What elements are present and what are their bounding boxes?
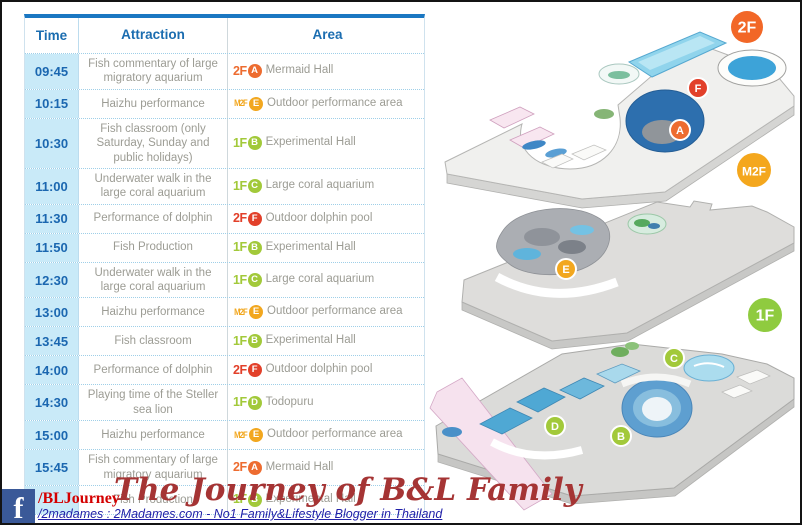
cell-time: 11:00 [25, 169, 79, 204]
floor-label: 2F [233, 363, 247, 378]
table-row: 10:15Haizhu performanceM2FEOutdoor perfo… [25, 90, 424, 119]
table-row: 09:45Fish commentary of large migratory … [25, 54, 424, 90]
floor-map-m2f [462, 201, 794, 349]
floor-badge-label: 1F [756, 308, 775, 325]
cell-time: 13:45 [25, 327, 79, 355]
cell-time: 14:00 [25, 356, 79, 384]
area-name: Outdoor dolphin pool [266, 212, 373, 226]
cell-time: 15:00 [25, 421, 79, 449]
cell-attraction: Haizhu performance [79, 90, 228, 118]
marker-letter-dot: E [249, 428, 263, 442]
floor-marker-badge: 1FB [233, 334, 262, 349]
aquarium-floor-maps: 2FFAM2FE1FCDB [422, 2, 802, 527]
cell-time: 11:30 [25, 205, 79, 233]
area-name: Large coral aquarium [266, 179, 375, 193]
facebook-icon[interactable]: f [2, 489, 35, 523]
floor-marker-badge: 2FA [233, 64, 262, 79]
floor-badge-label: 2F [738, 20, 757, 37]
map-marker-letter: E [562, 264, 569, 276]
floor-label: 1F [233, 273, 247, 288]
cell-time: 13:00 [25, 298, 79, 326]
floor-label: 2F [233, 211, 247, 226]
floor-marker-badge: 1FB [233, 240, 262, 255]
cell-area: 1FDTodopuru [228, 385, 424, 420]
cell-attraction: Fish classroom [79, 327, 228, 355]
map-1f-oval-pool [684, 355, 734, 381]
floor-label: 1F [233, 395, 247, 410]
marker-letter-dot: C [248, 273, 262, 287]
table-row: 15:00Haizhu performanceM2FEOutdoor perfo… [25, 421, 424, 450]
map-2f-pink-room [490, 107, 534, 128]
floor-marker-badge: 1FD [233, 395, 262, 410]
cell-time: 12:30 [25, 263, 79, 298]
watermark-script-text: The Journey of B&L Family [114, 472, 582, 508]
blog-credit-line[interactable]: /2madames : 2Madames.com - No1 Family&Li… [38, 507, 442, 521]
cell-attraction: Performance of dolphin [79, 356, 228, 384]
marker-letter-dot: D [248, 396, 262, 410]
cell-time: 10:15 [25, 90, 79, 118]
floor-marker-badge: M2FE [233, 305, 263, 319]
cell-time: 14:30 [25, 385, 79, 420]
floor-marker-badge: 2FF [233, 211, 262, 226]
cell-time: 11:50 [25, 234, 79, 262]
cell-area: 2FAMermaid Hall [228, 54, 424, 89]
cell-area: 1FCLarge coral aquarium [228, 169, 424, 204]
floor-label: 1F [233, 334, 247, 349]
floor-label: 1F [233, 179, 247, 194]
floor-marker-badge: M2FE [233, 97, 263, 111]
map-marker-letter: B [617, 431, 625, 443]
cell-time: 09:45 [25, 54, 79, 89]
table-row: 11:30Performance of dolphin2FFOutdoor do… [25, 205, 424, 234]
floor-label: 1F [233, 240, 247, 255]
floor-label: 1F [233, 136, 247, 151]
floor-label: M2F [234, 430, 247, 441]
floor-marker-badge: 1FB [233, 136, 262, 151]
cell-time: 15:45 [25, 450, 79, 485]
cell-time: 10:30 [25, 119, 79, 168]
cell-attraction: Haizhu performance [79, 298, 228, 326]
floor-marker-badge: M2FE [233, 428, 263, 442]
cell-area: 1FBExperimental Hall [228, 327, 424, 355]
cell-attraction: Underwater walk in the large coral aquar… [79, 263, 228, 298]
marker-letter-dot: A [248, 64, 262, 78]
cell-area: 1FBExperimental Hall [228, 119, 424, 168]
facebook-handle-bljourney[interactable]: /BLJourney [38, 490, 120, 508]
floor-marker-badge: 1FC [233, 273, 262, 288]
column-header-attraction: Attraction [79, 18, 228, 53]
schedule-table: Time Attraction Area 09:45Fish commentar… [24, 14, 425, 515]
marker-letter-dot: B [248, 136, 262, 150]
area-name: Experimental Hall [266, 334, 356, 348]
column-header-area: Area [228, 18, 424, 53]
table-row: 14:30Playing time of the Steller sea lio… [25, 385, 424, 421]
marker-letter-dot: F [248, 363, 262, 377]
area-name: Outdoor dolphin pool [266, 363, 373, 377]
map-marker-letter: C [670, 353, 678, 365]
marker-letter-dot: B [248, 241, 262, 255]
floor-label: M2F [234, 98, 247, 109]
cell-area: 2FFOutdoor dolphin pool [228, 205, 424, 233]
cell-attraction: Fish Production [79, 234, 228, 262]
cell-area: M2FEOutdoor performance area [228, 90, 424, 118]
column-header-time: Time [25, 18, 79, 53]
floor-marker-badge: 1FC [233, 179, 262, 194]
cell-attraction: Fish commentary of large migratory aquar… [79, 54, 228, 89]
table-row: 14:00Performance of dolphin2FFOutdoor do… [25, 356, 424, 385]
cell-area: 2FFOutdoor dolphin pool [228, 356, 424, 384]
table-row: 11:50Fish Production1FBExperimental Hall [25, 234, 424, 263]
marker-letter-dot: F [248, 212, 262, 226]
marker-letter-dot: C [248, 179, 262, 193]
area-name: Todopuru [266, 396, 314, 410]
cell-attraction: Underwater walk in the large coral aquar… [79, 169, 228, 204]
map-marker-letter: A [676, 125, 684, 137]
table-row: 13:45Fish classroom1FBExperimental Hall [25, 327, 424, 356]
area-name: Mermaid Hall [266, 64, 334, 78]
area-name: Outdoor performance area [267, 97, 403, 111]
marker-letter-dot: E [249, 305, 263, 319]
cell-area: 1FCLarge coral aquarium [228, 263, 424, 298]
cell-attraction: Performance of dolphin [79, 205, 228, 233]
floor-label: M2F [234, 307, 247, 318]
cell-area: M2FEOutdoor performance area [228, 298, 424, 326]
map-marker-letter: F [695, 83, 702, 95]
floor-label: 2F [233, 64, 247, 79]
cell-attraction: Playing time of the Steller sea lion [79, 385, 228, 420]
schedule-rows: 09:45Fish commentary of large migratory … [25, 54, 424, 515]
floor-badge-label: M2F [742, 165, 766, 179]
table-row: 11:00Underwater walk in the large coral … [25, 169, 424, 205]
area-name: Experimental Hall [266, 136, 356, 150]
area-name: Experimental Hall [266, 241, 356, 255]
cell-area: M2FEOutdoor performance area [228, 421, 424, 449]
cell-area: 1FBExperimental Hall [228, 234, 424, 262]
marker-letter-dot: E [249, 97, 263, 111]
table-row: 13:00Haizhu performanceM2FEOutdoor perfo… [25, 298, 424, 327]
marker-letter-dot: B [248, 334, 262, 348]
area-name: Outdoor performance area [267, 428, 403, 442]
area-name: Large coral aquarium [266, 273, 375, 287]
cell-attraction: Haizhu performance [79, 421, 228, 449]
map-marker-letter: D [551, 421, 559, 433]
table-row: 12:30Underwater walk in the large coral … [25, 263, 424, 299]
floor-marker-badge: 2FF [233, 363, 262, 378]
table-row: 10:30Fish classroom (only Saturday, Sund… [25, 119, 424, 169]
cell-attraction: Fish classroom (only Saturday, Sunday an… [79, 119, 228, 168]
area-name: Outdoor performance area [267, 305, 403, 319]
table-header-row: Time Attraction Area [25, 18, 424, 54]
